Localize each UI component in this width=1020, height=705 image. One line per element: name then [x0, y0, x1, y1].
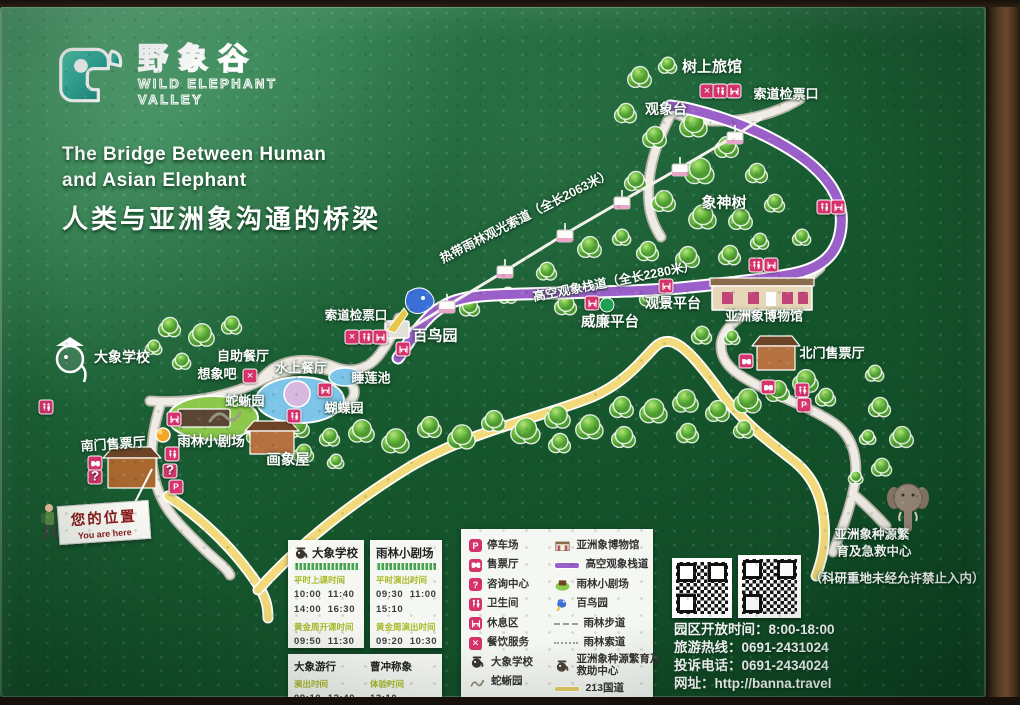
legend-item-bird: 百鸟园: [554, 595, 662, 615]
map-label-butterfly-garden: 蝴蝶园: [324, 398, 363, 417]
legend-label: 213国道: [585, 683, 624, 695]
legend-item-rest: 休息区: [469, 614, 546, 634]
wood-frame-right: [986, 0, 1020, 705]
rest-icon: [585, 296, 600, 311]
rest-icon: [659, 279, 674, 294]
map-label-god-tree: 象神树: [701, 192, 746, 213]
schedule-time: 09:50 11:30: [294, 635, 358, 650]
map-label-museum: 亚洲象博物馆: [725, 306, 803, 325]
title-cn: 人类与亚洲象沟通的桥梁: [62, 199, 381, 236]
rest-icon: [831, 200, 846, 215]
show-title: 大象游行: [294, 659, 360, 674]
map-label-buffet: 自助餐厅: [217, 346, 269, 365]
panel-header: 大象学校: [294, 545, 358, 561]
rest-icon: [318, 383, 333, 398]
show-entry: 曹冲称象 体验时间 13:10: [370, 659, 436, 698]
schedule-section-head: 平时演出时间: [376, 574, 436, 586]
rest-icon: [727, 84, 742, 99]
dining-icon: ✕: [243, 369, 258, 384]
schedule-time: 14:00 16:30: [294, 603, 358, 618]
logo-name-en1: WILD ELEPHANT: [138, 76, 277, 92]
toilet-icon: [817, 200, 832, 215]
legend-item-parking: P停车场: [469, 536, 546, 556]
toilet-icon: [359, 330, 374, 345]
theater-schedule-panel: 雨林小剧场 平时演出时间09:30 11:0015:10黄金周演出时间09:20…: [370, 540, 442, 648]
legend-item-info: ?咨询中心: [469, 575, 546, 595]
cable-car: [614, 190, 630, 209]
elephant-icon: [294, 546, 309, 561]
legend-item-line-dotted: 雨林索道: [554, 634, 662, 654]
complaint-phone: 投诉电话：0691-2434024: [674, 657, 835, 675]
shows-panel: 大象游行 演出时间 09:10 13:40曹冲称象 体验时间 13:10: [288, 654, 442, 698]
map-label-william-platform: 威廉平台: [581, 311, 639, 332]
toilet-icon: [165, 447, 180, 462]
legend-label: 停车场: [487, 540, 519, 552]
title-en-line1: The Bridge Between Human: [62, 142, 381, 168]
legend-label: 咨询中心: [487, 579, 529, 591]
toilet-icon: [713, 84, 728, 99]
toilet-icon: [795, 383, 810, 398]
elephant-school-glyph: [56, 337, 85, 382]
rest-icon: [167, 412, 182, 427]
qr-code-right: [738, 555, 801, 618]
tourism-hotline: 旅游热线：0691-2431024: [674, 639, 835, 657]
map-label-cable-check-top: 索道检票口: [753, 84, 818, 103]
map-board: 树上旅馆索道检票口观象台象神树热带雨林观光索道（全长2063米）高空观象栈道（全…: [0, 6, 986, 698]
cable-car: [672, 157, 688, 176]
legend-panel: P停车场售票厅?咨询中心卫生间休息区✕餐饮服务大象学校蛇蜥园 亚洲象博物馆高空观…: [461, 529, 653, 698]
rest-icon: [396, 342, 411, 357]
legend-label: 雨林索道: [583, 637, 625, 649]
map-label-observatory: 观象台: [645, 99, 687, 119]
panel-title: 大象学校: [312, 545, 358, 561]
map-label-tree-hotel: 树上旅馆: [682, 56, 742, 77]
legend-label: 大象学校: [491, 657, 533, 669]
ticket-icon: [739, 354, 754, 369]
legend-label: 雨林步道: [583, 618, 625, 630]
legend-item-rescue: 亚洲象种源繁育及救助中心: [554, 653, 662, 679]
legend-item-theater: 雨林小剧场: [554, 575, 662, 595]
elephant-logo-mark: [58, 44, 124, 106]
info-icon: ?: [88, 470, 103, 485]
parking-icon: P: [169, 480, 184, 495]
show-head: 体验时间: [370, 678, 436, 690]
map-label-north-ticket-hall: 北门售票厅: [799, 343, 864, 362]
map-label-lily-pond: 睡莲池: [351, 368, 390, 387]
map-label-rescue-line2: 育及急救中心: [836, 541, 911, 560]
legend-item-line-purple: 高空观象栈道: [554, 556, 662, 576]
rest-icon: [764, 258, 779, 273]
legend-label: 亚洲象博物馆: [576, 540, 639, 552]
legend-label: 雨林小剧场: [576, 579, 629, 591]
schedule-time: 15:10: [376, 603, 436, 618]
legend-label: 卫生间: [487, 598, 519, 610]
map-label-imagine-bar: 想象吧: [197, 364, 236, 383]
legend-item-dining: ✕餐饮服务: [469, 634, 546, 654]
legend-item-museum: 亚洲象博物馆: [554, 536, 662, 556]
frame-edge-bottom: [0, 697, 1020, 705]
legend-label: 售票厅: [487, 559, 519, 571]
legend-label: 蛇蜥园: [491, 676, 523, 688]
schedule-time: 09:20 10:30: [376, 635, 436, 650]
schedule-section-head: 黄金周开课时间: [294, 621, 358, 633]
legend-label: 亚洲象种源繁育及救助中心: [576, 654, 662, 677]
map-label-view-platform: 观景平台: [645, 293, 701, 313]
green-banner: [376, 563, 436, 570]
legend-label: 餐饮服务: [487, 637, 529, 649]
hiker-figure: [41, 504, 55, 539]
map-label-bird-garden: 百鸟园: [412, 325, 457, 346]
panel-title: 雨林小剧场: [376, 545, 434, 561]
schedule-section-head: 平时上课时间: [294, 574, 358, 586]
map-label-paint-house: 画象屋: [266, 449, 310, 470]
legend-label: 休息区: [487, 618, 519, 630]
legend-item-ticket: 售票厅: [469, 556, 546, 576]
qr-code-left: [672, 558, 732, 618]
toilet-icon: [749, 258, 764, 273]
schedule-time: 09:30 11:00: [376, 588, 436, 603]
legend-item-elephant: 大象学校: [469, 653, 546, 673]
map-title: The Bridge Between Human and Asian Eleph…: [62, 142, 381, 236]
parking-icon: P: [797, 398, 812, 413]
rest-icon: [373, 330, 388, 345]
panel-header: 雨林小剧场: [376, 545, 436, 561]
website-url: 网址：http://banna.travel: [674, 675, 835, 693]
map-label-cable-check-mid: 索道检票口: [325, 305, 388, 324]
legend-label: 百鸟园: [576, 598, 608, 610]
signboard-photo: 树上旅馆索道检票口观象台象神树热带雨林观光索道（全长2063米）高空观象栈道（全…: [0, 0, 1020, 705]
opening-hours: 园区开放时间：8:00-18:00: [674, 621, 835, 639]
green-banner: [294, 563, 358, 570]
toilet-icon: [287, 409, 302, 424]
logo: 野象谷 WILD ELEPHANT VALLEY: [58, 44, 277, 108]
legend-label: 高空观象栈道: [585, 559, 648, 571]
schedule-time: 10:00 11:40: [294, 588, 358, 603]
map-label-rainforest-theater: 雨林小剧场: [177, 430, 245, 450]
legend-item-toilet: 卫生间: [469, 595, 546, 615]
park-info-block: 园区开放时间：8:00-18:00 旅游热线：0691-2431024 投诉电话…: [674, 621, 835, 693]
logo-name-cn: 野象谷: [138, 44, 277, 76]
toilet-icon: [39, 400, 54, 415]
legend-item-line-dashed: 雨林步道: [554, 614, 662, 634]
logo-name-en2: VALLEY: [138, 92, 277, 108]
you-are-here-label: 您的位置 You are here: [57, 500, 151, 545]
show-entry: 大象游行 演出时间 09:10 13:40: [294, 659, 360, 698]
show-head: 演出时间: [294, 678, 360, 690]
cable-car: [497, 259, 513, 278]
dining-icon: ✕: [345, 330, 360, 345]
elephant-school-schedule-panel: 大象学校 平时上课时间10:00 11:4014:00 16:30黄金周开课时间…: [288, 540, 364, 648]
map-label-snake-garden: 蛇蜥园: [225, 391, 264, 410]
legend-item-snake: 蛇蜥园: [469, 673, 546, 693]
info-icon: ?: [163, 464, 178, 479]
map-label-research-note: （科研重地未经允许禁止入内）: [809, 568, 984, 587]
frame-edge-top: [0, 0, 1020, 7]
ticket-icon: [761, 380, 776, 395]
schedule-section-head: 黄金周演出时间: [376, 621, 436, 633]
map-label-water-restaurant: 水上餐厅: [275, 358, 327, 377]
title-en-line2: and Asian Elephant: [62, 168, 381, 194]
cable-car: [557, 223, 573, 242]
map-label-elephant-school: 大象学校: [94, 347, 150, 367]
show-title: 曹冲称象: [370, 659, 436, 674]
legend-item-line-yellow: 213国道: [554, 679, 662, 698]
greendot-icon: [600, 298, 615, 313]
